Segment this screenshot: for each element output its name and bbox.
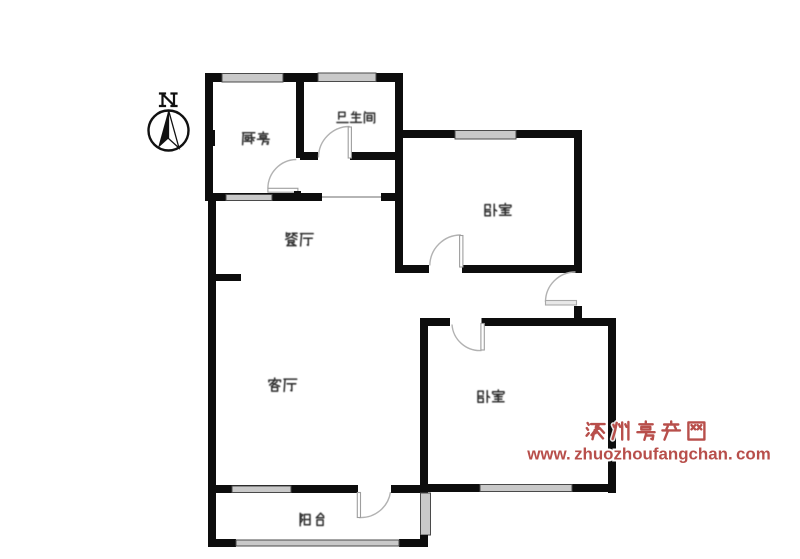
svg-text:www. zhuozhoufangchan. com: www. zhuozhoufangchan. com [526,445,771,464]
